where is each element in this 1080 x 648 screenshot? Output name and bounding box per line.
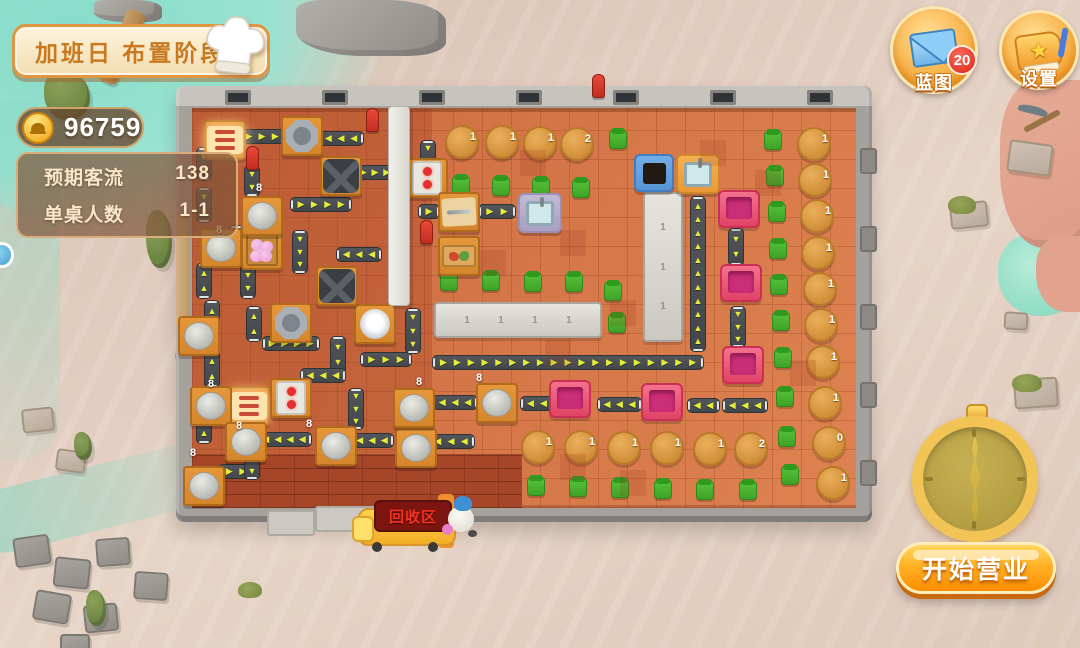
table-seat-count: 1 <box>841 472 847 484</box>
octagon-pot[interactable] <box>270 303 312 343</box>
coin-icon <box>22 112 54 144</box>
belt-capacity-label: 8 <box>236 420 242 432</box>
dining-table[interactable]: 1 <box>650 431 684 465</box>
floor-tile-patch <box>480 250 506 276</box>
dining-table[interactable]: 1 <box>800 199 834 233</box>
pen-icon <box>1058 27 1069 58</box>
conveyor-belt[interactable]: ▼▼▼ <box>405 308 421 354</box>
chair[interactable] <box>768 203 786 222</box>
chair[interactable] <box>565 273 583 292</box>
dining-table[interactable]: 1 <box>808 386 842 420</box>
conveyor-belt[interactable]: ◀◀ <box>687 398 720 413</box>
fire-extinguisher[interactable] <box>420 220 433 244</box>
fire-extinguisher[interactable] <box>592 74 605 98</box>
conveyor-belt[interactable]: ◀◀◀ <box>336 247 382 262</box>
chair[interactable] <box>492 177 510 196</box>
table-seat-count: 1 <box>675 437 681 449</box>
table-seat-count: 2 <box>585 133 591 145</box>
table-seat-count: 0 <box>837 432 843 444</box>
floor-tile-patch <box>700 140 726 166</box>
chair[interactable] <box>527 477 545 496</box>
belt-capacity-label: 8 <box>190 447 196 459</box>
floor-tile-patch <box>520 150 546 176</box>
counter-table[interactable]: 111 <box>643 192 683 342</box>
conveyor-belt[interactable]: ▶ <box>418 204 440 219</box>
dining-table[interactable]: 1 <box>804 308 838 342</box>
chair[interactable] <box>604 282 622 301</box>
chair[interactable] <box>654 480 672 499</box>
cylinder[interactable] <box>178 316 220 356</box>
x-grill[interactable] <box>316 266 358 306</box>
chair[interactable] <box>769 240 787 259</box>
chair[interactable] <box>772 312 790 331</box>
conveyor-belt[interactable]: ▶▶ <box>478 204 516 219</box>
dining-table[interactable]: 1 <box>801 236 835 270</box>
conveyor-belt[interactable]: ◀◀◀ <box>432 395 478 410</box>
knife-table[interactable] <box>438 192 480 232</box>
settings-button[interactable]: ★ 设置 <box>999 10 1079 90</box>
stat-value: 1-1 <box>180 200 210 227</box>
held-item <box>442 524 453 535</box>
white-pot[interactable] <box>354 304 396 344</box>
floor-tile-patch <box>560 230 586 256</box>
dining-table[interactable]: 1 <box>485 125 519 159</box>
clock-face <box>912 416 1038 542</box>
star-icon: ★ <box>1028 39 1051 64</box>
table-seat-count: 1 <box>825 205 831 217</box>
dining-table[interactable]: 2 <box>560 127 594 161</box>
dining-table[interactable]: 1 <box>521 430 555 464</box>
cart-wheel <box>428 542 438 552</box>
table-seat-count: 1 <box>718 438 724 450</box>
conveyor-belt[interactable]: ◀◀◀ <box>597 397 642 412</box>
conveyor-belt[interactable]: ▼▼▼ <box>292 230 308 274</box>
cart-cab <box>352 516 374 542</box>
clock-tick <box>972 429 976 437</box>
cylinder[interactable] <box>225 422 267 462</box>
bread-display[interactable] <box>228 386 270 426</box>
dining-table[interactable]: 1 <box>607 431 641 465</box>
dining-table[interactable]: 1 <box>798 163 832 197</box>
cylinder[interactable] <box>395 428 437 468</box>
entrance-mat <box>267 510 315 536</box>
blueprint-button[interactable]: 20 蓝图 <box>890 6 978 94</box>
chair[interactable] <box>572 179 590 198</box>
dining-table[interactable]: 1 <box>797 127 831 161</box>
table-seat-count: 1 <box>833 392 839 404</box>
table-seat-count: 1 <box>823 169 829 181</box>
stat-row-expected-customers: 预期客流 138 <box>44 163 210 190</box>
belt-capacity-label: 8 <box>416 376 422 388</box>
pink-table[interactable] <box>641 383 683 421</box>
belt-capacity-label: 8 <box>306 418 312 430</box>
chair[interactable] <box>739 481 757 500</box>
belt-capacity-label: 8 <box>208 378 214 390</box>
octagon-pot[interactable] <box>281 116 323 156</box>
conveyor-belt[interactable]: ▲▲▲▲▲▲▲▲▲▲▲ <box>690 196 706 352</box>
table-seat-count: 1 <box>831 351 837 363</box>
chair[interactable] <box>778 428 796 447</box>
clock-tick <box>972 521 976 529</box>
game-screen: ▶▶▶◀◀◀▼▼▼▼▶▶▶▶▼▼▼▼▼▼▼▲▲▼▼◀◀◀▼▼▲▲▲▲▶▶▶▶▼▼… <box>0 0 1080 648</box>
pink-table[interactable] <box>722 346 764 384</box>
chef-foot <box>468 530 477 537</box>
cylinder[interactable] <box>190 386 232 426</box>
recycle-sign: 回收区 <box>374 500 452 532</box>
stat-label: 单桌人数 <box>44 200 124 227</box>
recycle-sign-label: 回收区 <box>389 506 437 527</box>
serving-pillar[interactable] <box>388 106 410 306</box>
table-seat-count: 1 <box>470 131 476 143</box>
veg-crate[interactable] <box>438 236 480 276</box>
conveyor-belt[interactable]: ▲▲ <box>196 263 212 299</box>
fire-extinguisher[interactable] <box>366 108 379 132</box>
floor-tile-patch <box>790 360 816 386</box>
floor-tile-patch <box>560 454 586 480</box>
dining-table[interactable]: 1 <box>803 272 837 306</box>
dining-table[interactable]: 0 <box>812 426 846 460</box>
stove[interactable] <box>270 378 312 418</box>
chair[interactable] <box>524 273 542 292</box>
recycle-station[interactable]: 回收区 <box>352 494 482 558</box>
cylinder[interactable] <box>476 383 518 423</box>
coin-counter: 96759 <box>16 107 144 148</box>
trash-bin[interactable] <box>634 154 674 192</box>
conveyor-belt[interactable]: ▲▲ <box>246 306 262 342</box>
stat-label: 预期客流 <box>44 163 124 190</box>
conveyor-belt[interactable]: ▶▶▶▶ <box>290 197 352 212</box>
conveyor-belt[interactable]: ▼▼▼ <box>348 388 364 430</box>
chair[interactable] <box>569 478 587 497</box>
stat-value: 138 <box>175 163 210 190</box>
table-seat-count: 1 <box>510 131 516 143</box>
table-seat-count: 1 <box>828 278 834 290</box>
dining-table[interactable]: 2 <box>734 432 768 466</box>
stat-row-seats-per-table: 单桌人数 1-1 <box>44 200 210 227</box>
cylinder[interactable] <box>241 196 283 236</box>
table-seat-count: 1 <box>546 436 552 448</box>
belt-capacity-label: 8 <box>476 372 482 384</box>
chair[interactable] <box>781 466 799 485</box>
pink-table[interactable] <box>549 380 591 418</box>
pink-table[interactable] <box>720 264 762 302</box>
cart-wheel <box>372 542 382 552</box>
settings-button-label: 设置 <box>1002 65 1076 91</box>
conveyor-belt[interactable]: ▶▶▶ <box>360 352 412 367</box>
dining-table[interactable]: 1 <box>816 466 850 500</box>
stats-panel: 预期客流 138 单桌人数 1-1 <box>16 152 238 238</box>
conveyor-belt[interactable]: ◀◀◀ <box>318 131 364 146</box>
conveyor-belt[interactable]: ◀◀◀ <box>722 398 768 413</box>
conveyor-belt[interactable]: ▼▼ <box>240 265 256 299</box>
clock-hand <box>969 435 981 522</box>
conveyor-belt[interactable]: ▼▼ <box>728 228 744 266</box>
table-seat-count: 1 <box>548 132 554 144</box>
pink-table[interactable] <box>718 190 760 228</box>
belt-capacity-label: 8 <box>256 182 262 194</box>
conveyor-belt[interactable]: ▼▼▼ <box>730 306 746 348</box>
fire-extinguisher[interactable] <box>246 146 259 170</box>
chair[interactable] <box>770 276 788 295</box>
cylinder[interactable] <box>183 466 225 506</box>
table-seat-count: 1 <box>829 314 835 326</box>
floor-tile-patch <box>610 300 636 326</box>
dumplings[interactable] <box>241 230 283 270</box>
floor-tile-patch <box>755 170 781 196</box>
cylinder[interactable] <box>315 426 357 466</box>
table-seat-count: 1 <box>826 242 832 254</box>
dining-table[interactable]: 1 <box>693 432 727 466</box>
chef-hat-blue <box>454 496 472 511</box>
floor-tile-patch <box>545 340 571 366</box>
blueprint-button-label: 蓝图 <box>893 69 975 95</box>
chair[interactable] <box>776 388 794 407</box>
x-grill[interactable] <box>320 156 362 196</box>
coin-count: 96759 <box>64 112 141 143</box>
table-seat-count: 1 <box>589 436 595 448</box>
chair[interactable] <box>696 481 714 500</box>
floor-tile-patch <box>620 470 646 496</box>
sink[interactable] <box>518 193 562 233</box>
clock-tick <box>1017 477 1025 481</box>
cylinder[interactable] <box>393 388 435 428</box>
table-seat-count: 1 <box>822 133 828 145</box>
clock-tick <box>925 477 933 481</box>
start-business-button[interactable]: 开始营业 <box>896 542 1056 594</box>
chef-hat-icon <box>194 2 276 87</box>
start-business-label: 开始营业 <box>922 550 1030 586</box>
dining-table[interactable]: 1 <box>445 125 479 159</box>
chair[interactable] <box>764 131 782 150</box>
chair[interactable] <box>609 130 627 149</box>
table-seat-count: 1 <box>632 437 638 449</box>
counter-table[interactable]: 1111 <box>434 302 602 338</box>
table-seat-count: 2 <box>759 438 765 450</box>
